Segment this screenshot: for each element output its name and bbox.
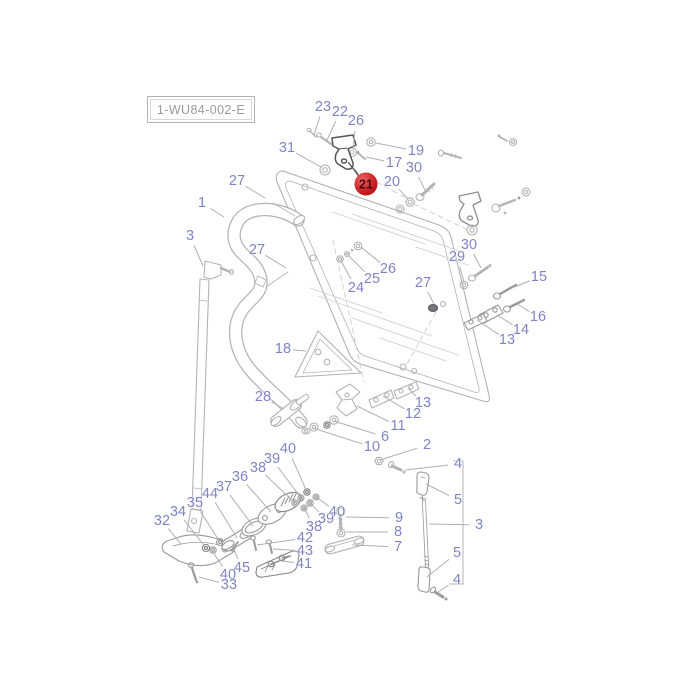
- callout-27[interactable]: 27: [415, 276, 431, 291]
- leader-line: [380, 448, 417, 460]
- leader-line: [428, 292, 434, 304]
- leader-line: [247, 484, 271, 512]
- leader-line: [257, 539, 295, 545]
- leader-line: [200, 511, 220, 542]
- drawing-code-text: 1-WU84-002-E: [157, 103, 245, 117]
- callout-38[interactable]: 38: [250, 461, 266, 476]
- leader-line: [477, 320, 499, 334]
- callout-41[interactable]: 41: [296, 557, 312, 572]
- leader-line: [512, 281, 530, 288]
- callout-4[interactable]: 4: [454, 457, 462, 472]
- leader-line: [497, 315, 513, 325]
- callout-4[interactable]: 4: [453, 573, 461, 588]
- callout-27[interactable]: 27: [249, 243, 265, 258]
- callout-28[interactable]: 28: [255, 390, 271, 405]
- leader-line: [199, 577, 219, 582]
- leader-line: [429, 524, 469, 525]
- leader-line: [353, 131, 355, 149]
- leader-line: [265, 255, 286, 268]
- callout-1[interactable]: 1: [198, 196, 206, 211]
- callout-27[interactable]: 27: [229, 174, 245, 189]
- callout-3[interactable]: 3: [475, 518, 483, 533]
- leader-line: [313, 428, 362, 444]
- callout-7[interactable]: 7: [394, 540, 402, 555]
- callout-23[interactable]: 23: [315, 100, 331, 115]
- callout-11[interactable]: 11: [390, 419, 405, 434]
- leader-line: [194, 245, 203, 266]
- leader-line: [304, 508, 309, 518]
- leader-line: [460, 267, 464, 282]
- leader-line: [184, 520, 206, 548]
- callout-34[interactable]: 34: [170, 505, 186, 520]
- callout-12[interactable]: 12: [405, 407, 421, 422]
- callout-26[interactable]: 26: [380, 262, 396, 277]
- callout-31[interactable]: 31: [279, 141, 295, 156]
- leader-line: [438, 585, 449, 592]
- callout-17[interactable]: 17: [386, 156, 402, 171]
- leader-line: [292, 458, 307, 492]
- leader-line: [265, 475, 295, 503]
- callout-20[interactable]: 20: [384, 175, 400, 190]
- leader-line: [213, 552, 223, 567]
- highlighted-part-badge[interactable]: 21: [355, 173, 378, 196]
- callout-24[interactable]: 24: [348, 281, 364, 296]
- callout-leader-lines: [0, 0, 700, 700]
- callout-22[interactable]: 22: [332, 105, 348, 120]
- callout-16[interactable]: 16: [530, 310, 546, 325]
- leader-line: [272, 402, 284, 409]
- leader-line: [405, 465, 448, 470]
- leader-line: [474, 254, 481, 268]
- callout-44[interactable]: 44: [202, 487, 218, 502]
- leader-line: [230, 495, 253, 526]
- callout-40[interactable]: 40: [329, 505, 345, 520]
- leader-line: [282, 561, 294, 563]
- callout-25[interactable]: 25: [364, 272, 380, 287]
- callout-39[interactable]: 39: [264, 452, 280, 467]
- leader-line: [327, 121, 336, 140]
- leader-line: [210, 208, 224, 217]
- callout-33[interactable]: 33: [221, 578, 237, 593]
- callout-36[interactable]: 36: [232, 470, 248, 485]
- callout-35[interactable]: 35: [187, 496, 203, 511]
- leader-line: [316, 497, 329, 506]
- leader-line: [517, 304, 529, 312]
- callout-30[interactable]: 30: [461, 238, 477, 253]
- callout-5[interactable]: 5: [453, 546, 461, 561]
- leader-line: [349, 256, 365, 272]
- leader-line: [334, 421, 375, 434]
- leader-line: [383, 396, 404, 409]
- callout-19[interactable]: 19: [408, 144, 424, 159]
- leader-line: [273, 549, 295, 550]
- callout-5[interactable]: 5: [454, 493, 462, 508]
- leader-line: [314, 117, 320, 135]
- callout-45[interactable]: 45: [234, 561, 250, 576]
- drawing-code-box: 1-WU84-002-E: [147, 96, 255, 123]
- leader-line: [296, 153, 321, 167]
- callout-10[interactable]: 10: [364, 440, 380, 455]
- callout-30[interactable]: 30: [406, 161, 422, 176]
- callout-40[interactable]: 40: [280, 442, 296, 457]
- leader-line: [168, 529, 181, 544]
- leader-line: [399, 189, 408, 199]
- leader-line: [215, 503, 237, 538]
- leader-line: [366, 157, 384, 161]
- leader-line: [361, 247, 380, 263]
- leader-line: [376, 143, 406, 149]
- callout-37[interactable]: 37: [216, 480, 232, 495]
- leader-line: [341, 261, 351, 279]
- leader-line: [426, 484, 449, 496]
- leader-line: [352, 545, 388, 547]
- leader-line: [348, 162, 358, 175]
- leader-line: [293, 350, 306, 351]
- exploded-parts-diagram: 1-WU84-002-E 232226311917302027132724252…: [0, 0, 700, 700]
- callout-18[interactable]: 18: [275, 342, 291, 357]
- leader-line: [346, 517, 389, 518]
- callout-26[interactable]: 26: [348, 114, 364, 129]
- callout-15[interactable]: 15: [531, 270, 547, 285]
- callout-3[interactable]: 3: [186, 229, 194, 244]
- callout-8[interactable]: 8: [394, 525, 402, 540]
- leader-line: [427, 559, 449, 577]
- leader-line: [234, 550, 238, 559]
- callout-6[interactable]: 6: [381, 430, 389, 445]
- leader-line: [357, 406, 389, 422]
- leader-line: [246, 186, 265, 198]
- leader-line: [418, 177, 425, 190]
- callout-32[interactable]: 32: [154, 514, 170, 529]
- callout-2[interactable]: 2: [423, 438, 431, 453]
- callout-14[interactable]: 14: [513, 323, 529, 338]
- callout-13[interactable]: 13: [499, 333, 515, 348]
